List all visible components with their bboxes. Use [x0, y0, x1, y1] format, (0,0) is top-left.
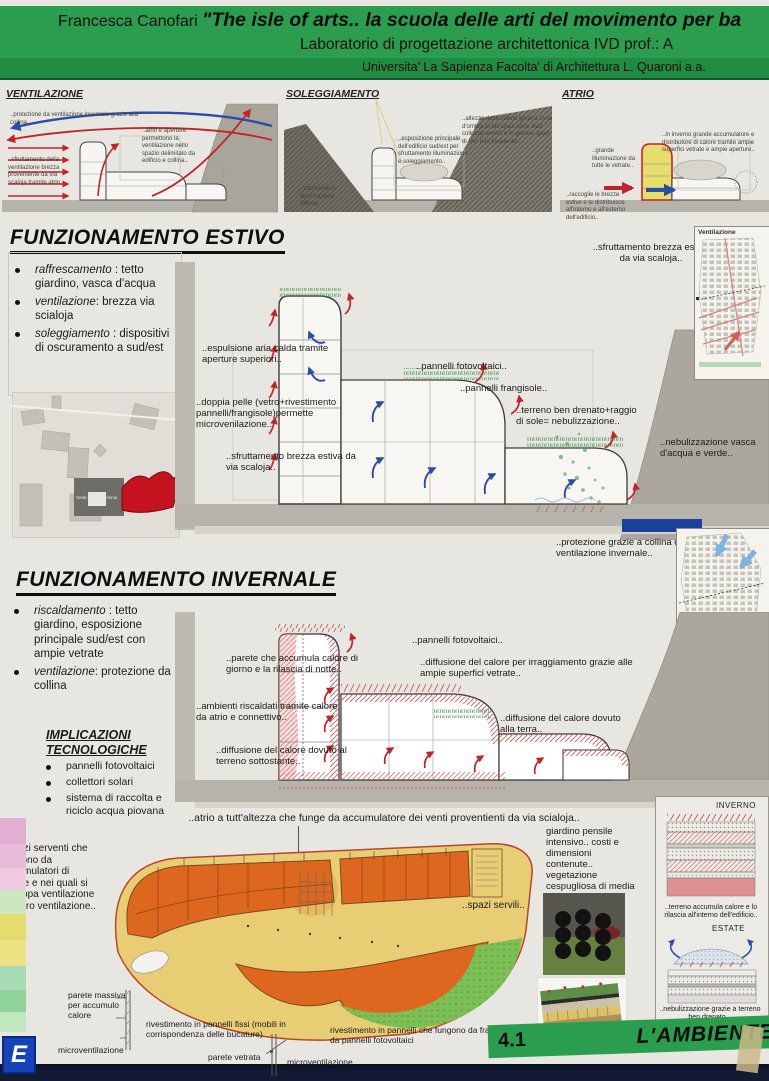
list-item: riscaldamento : tetto giardino, esposizi…: [8, 604, 178, 662]
list-item: ventilazione: protezione da collina: [8, 665, 178, 694]
footer-number: 4.1: [498, 1029, 527, 1053]
estivo-map-drawing: [695, 236, 767, 374]
wall-note-fissi: rivestimento in pannelli fissi (mobili i…: [146, 1020, 314, 1040]
inverno-strata2-drawing: [666, 968, 758, 1006]
invernale-bullet-box: riscaldamento : tetto giardino, esposizi…: [8, 594, 180, 696]
sticky-strip: [0, 966, 26, 990]
sticky-notes: [0, 818, 26, 1032]
invernale-note-parete: ..parete che accumula calore di giorno e…: [226, 654, 368, 676]
sticky-strip: [0, 990, 26, 1012]
estivo-note-espulsione: ..espulsione aria calda tramite aperture…: [202, 344, 360, 366]
floor-plan: [88, 834, 542, 1046]
estivo-map-title: Ventilazione: [695, 227, 769, 236]
section-heading-invernale: FUNZIONAMENTO INVERNALE: [16, 568, 336, 596]
glass-wall-detail-icon: [262, 1032, 288, 1078]
plan-label-spazi-serviti: ..spazi servili..: [462, 900, 547, 912]
invernale-note-irraggiamento: ..diffusione del calore per irraggiament…: [420, 658, 635, 680]
list-item: ventilazione: brezza via scialoja: [9, 295, 179, 324]
atrio-note-brezze: ..raccoglie le brezze estive e le distri…: [566, 192, 628, 222]
invernale-note-ambienti: ..ambienti riscaldati tramite calore da …: [196, 702, 348, 724]
sticky-strip: [0, 914, 26, 940]
header-strip: Universita' La Sapienza Facolta' di Arch…: [0, 58, 769, 78]
estivo-note-terreno: ..terreno ben drenato+raggio di sole= ne…: [516, 406, 641, 428]
poster: Francesca Canofari "The isle of arts.. l…: [0, 0, 769, 1064]
ventilazione-note-collina: ..protezione da ventilazione invernale g…: [10, 112, 150, 127]
soleggiamento-note-esposizione: ..esposizione principale dell'edificio s…: [398, 136, 468, 166]
estivo-map-panel: Ventilazione: [694, 226, 769, 380]
diagram-title-atrio: ATRIO: [562, 88, 594, 100]
wall-note-micro1: microventilazione: [58, 1046, 170, 1056]
atrio-note-vetrate: ..grande illuminazione da tutte le vetra…: [592, 148, 648, 171]
list-item: pannelli fotovoltaici: [40, 760, 180, 773]
invernale-note-terra: ..diffusione del calore dovuto alla terr…: [500, 714, 635, 736]
invernale-bullet-list: riscaldamento : tetto giardino, esposizi…: [8, 604, 178, 693]
invernale-note-sottostante: ..diffusione del calore dovuto al terren…: [216, 746, 354, 768]
header-course: Laboratorio di progettazione architetton…: [300, 36, 673, 54]
bottom-caption: ..atrio a tutt'altezza che funge da accu…: [168, 812, 600, 824]
header-band: Francesca Canofari "The isle of arts.. l…: [0, 6, 769, 80]
corner-letter-tile: E: [2, 1036, 36, 1074]
sticky-strip: [0, 940, 26, 966]
header-title: "The isle of arts.. la scuola delle arti…: [202, 9, 741, 31]
site-map-label: Sede di Via Flaminia: [76, 495, 124, 500]
diagram-title-ventilazione: VENTILAZIONE: [6, 88, 83, 100]
list-item: raffrescamento : tetto giardino, vasca d…: [9, 263, 179, 292]
list-item: collettori solari: [40, 776, 180, 789]
atrio-note-inverno: ..in inverno grande accumulatore e distr…: [662, 132, 758, 155]
estivo-bullet-box: raffrescamento : tetto giardino, vasca d…: [8, 252, 182, 396]
sticky-strip: [0, 890, 26, 914]
estate-dome-drawing: [660, 934, 762, 968]
header-line1: Francesca Canofari "The isle of arts.. l…: [58, 9, 741, 32]
invernale-note-fotovoltaici: ..pannelli fotovoltaici..: [412, 636, 527, 647]
estivo-note-fotovoltaici: ..pannelli fotovoltaici..: [416, 362, 531, 373]
invernale-impl-heading: IMPLICAZIONI TECNOLOGICHE: [46, 728, 176, 758]
corner-letter: E: [11, 1041, 27, 1069]
inverno-label: INVERNO: [716, 801, 766, 810]
estivo-note-frangisole: ..pannelli frangisole..: [460, 384, 575, 395]
header-university: Universita' La Sapienza Facolta' di Arch…: [362, 60, 706, 74]
estivo-note-nebulizzazione: ..nebulizzazione vasca d'acqua e verde..: [660, 438, 765, 460]
estivo-bullet-list: raffrescamento : tetto giardino, vasca d…: [9, 263, 179, 355]
garden-photo: [543, 893, 625, 975]
inverno-strata-drawing: [663, 814, 759, 902]
section-heading-estivo: FUNZIONAMENTO ESTIVO: [10, 226, 285, 254]
sticky-strip: [0, 1012, 26, 1032]
soleggiamento-note-diffusa: ..sfruttamento illuminazione diffusa..: [300, 186, 354, 209]
estate-label: ESTATE: [712, 924, 762, 933]
site-map: [12, 392, 180, 538]
wall-note-micro2: microventilazione: [287, 1058, 399, 1068]
ventilazione-note-atrio: ..atrio e aperture permettono la ventila…: [142, 128, 204, 166]
sticky-strip: [0, 844, 26, 868]
header-author: Francesca Canofari: [58, 13, 198, 30]
estivo-note-brezza-alto: ..sfruttamento brezza estiva da via scal…: [592, 243, 710, 265]
list-item: sistema di raccolta e riciclo acqua piov…: [40, 792, 180, 818]
sticky-strip: [0, 818, 26, 844]
inverno-note-terreno: ..terreno accumula calore e lo rilascia …: [658, 904, 764, 920]
diagram-title-soleggiamento: SOLEGGIAMENTO: [286, 88, 379, 100]
soleggiamento-note-ombra: ..altezza della collina genera zone d'om…: [462, 116, 554, 146]
sticky-strip: [0, 868, 26, 890]
list-item: soleggiamento : dispositivi di oscuramen…: [9, 327, 179, 356]
estivo-note-doppia-pelle: ..doppia pelle (vetro+rivestimento panne…: [196, 398, 344, 431]
bottom-note-giardino: giardino pensile intensivo.. costi e dim…: [546, 827, 638, 903]
estivo-note-brezza: ..sfruttamento brezza estiva da via scal…: [226, 452, 361, 474]
invernale-impl-list: pannelli fotovoltaici collettori solari …: [40, 760, 180, 822]
ventilazione-note-brezza: ..sfruttamento della ventilazione brezza…: [8, 157, 68, 187]
